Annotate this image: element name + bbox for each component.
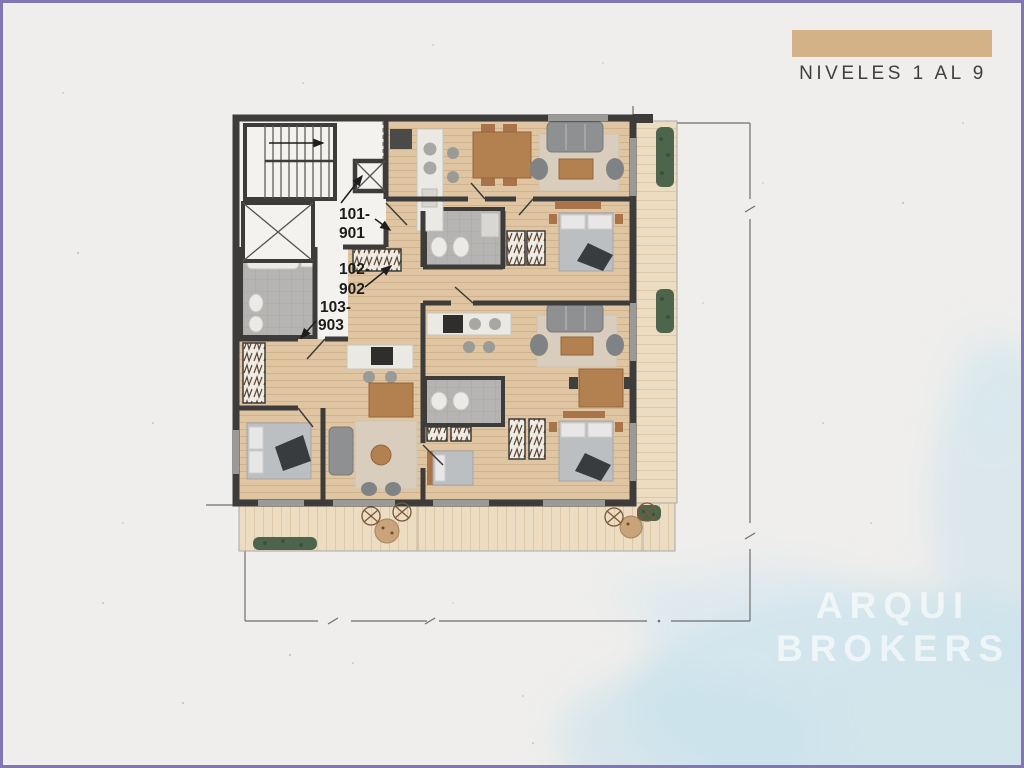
label-903: 903 [318, 317, 344, 334]
label-902: 902 [339, 281, 365, 298]
label-101: 101- [339, 206, 370, 223]
wall-stub [633, 114, 653, 123]
header-color-swatch [792, 30, 992, 57]
page-title: NIVELES 1 AL 9 [773, 63, 1013, 85]
shaft [243, 203, 313, 261]
label-103: 103- [320, 299, 351, 316]
elevator [355, 161, 385, 191]
label-901: 901 [339, 225, 365, 242]
stairs [245, 125, 335, 199]
floor-plan-page: 101- 901 102- 902 103- 903 NIVELES 1 AL … [0, 0, 1024, 768]
label-102: 102- [339, 261, 370, 278]
floor-plan-svg: 101- 901 102- 902 103- 903 [3, 3, 1024, 768]
